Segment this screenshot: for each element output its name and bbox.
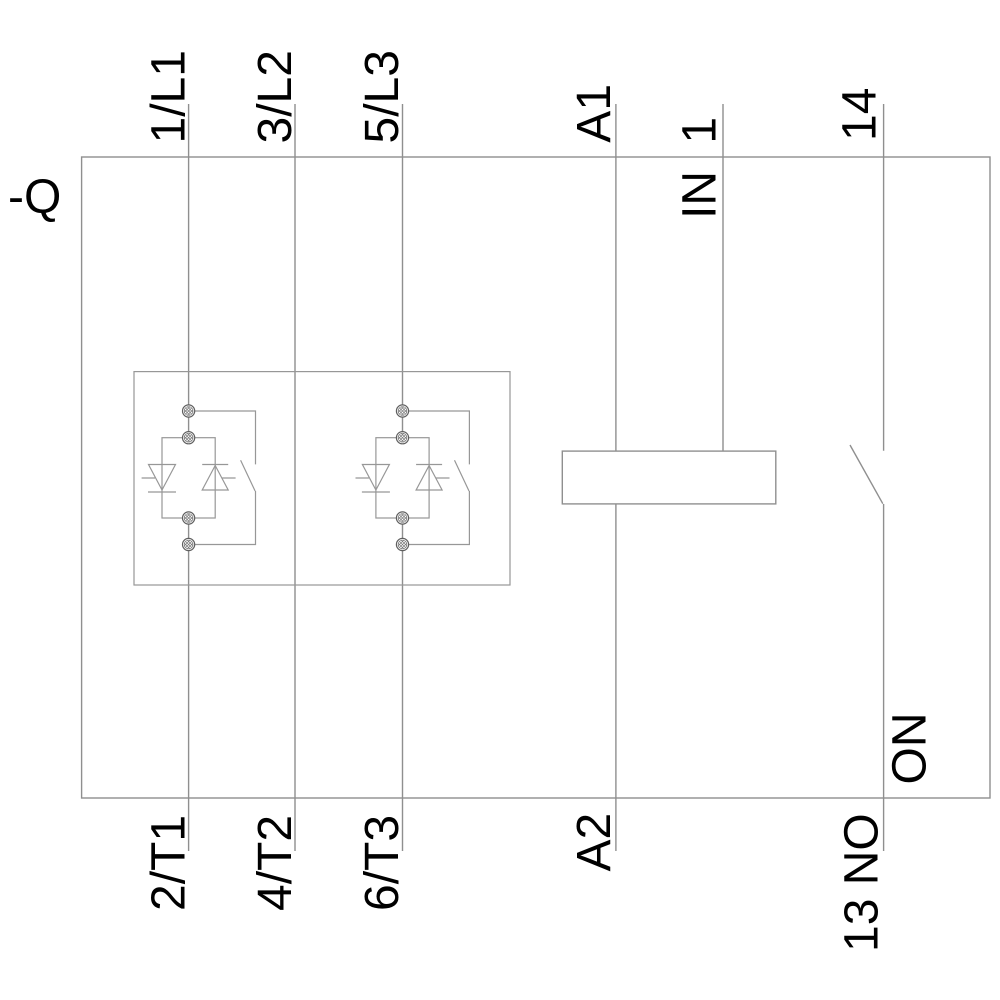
svg-text:2/T1: 2/T1: [143, 815, 196, 911]
svg-text:ON: ON: [884, 713, 937, 785]
svg-text:1/L1: 1/L1: [143, 50, 196, 143]
svg-text:14: 14: [834, 88, 887, 141]
svg-text:13 NO: 13 NO: [836, 813, 889, 952]
svg-text:4/T2: 4/T2: [249, 815, 302, 911]
svg-text:-Q: -Q: [8, 171, 61, 224]
svg-text:1: 1: [674, 117, 727, 144]
svg-text:A1: A1: [568, 84, 621, 143]
svg-text:3/L2: 3/L2: [249, 50, 302, 143]
svg-text:A2: A2: [568, 813, 621, 872]
svg-text:6/T3: 6/T3: [356, 815, 409, 911]
svg-text:5/L3: 5/L3: [356, 50, 409, 143]
svg-text:IN: IN: [674, 171, 727, 219]
